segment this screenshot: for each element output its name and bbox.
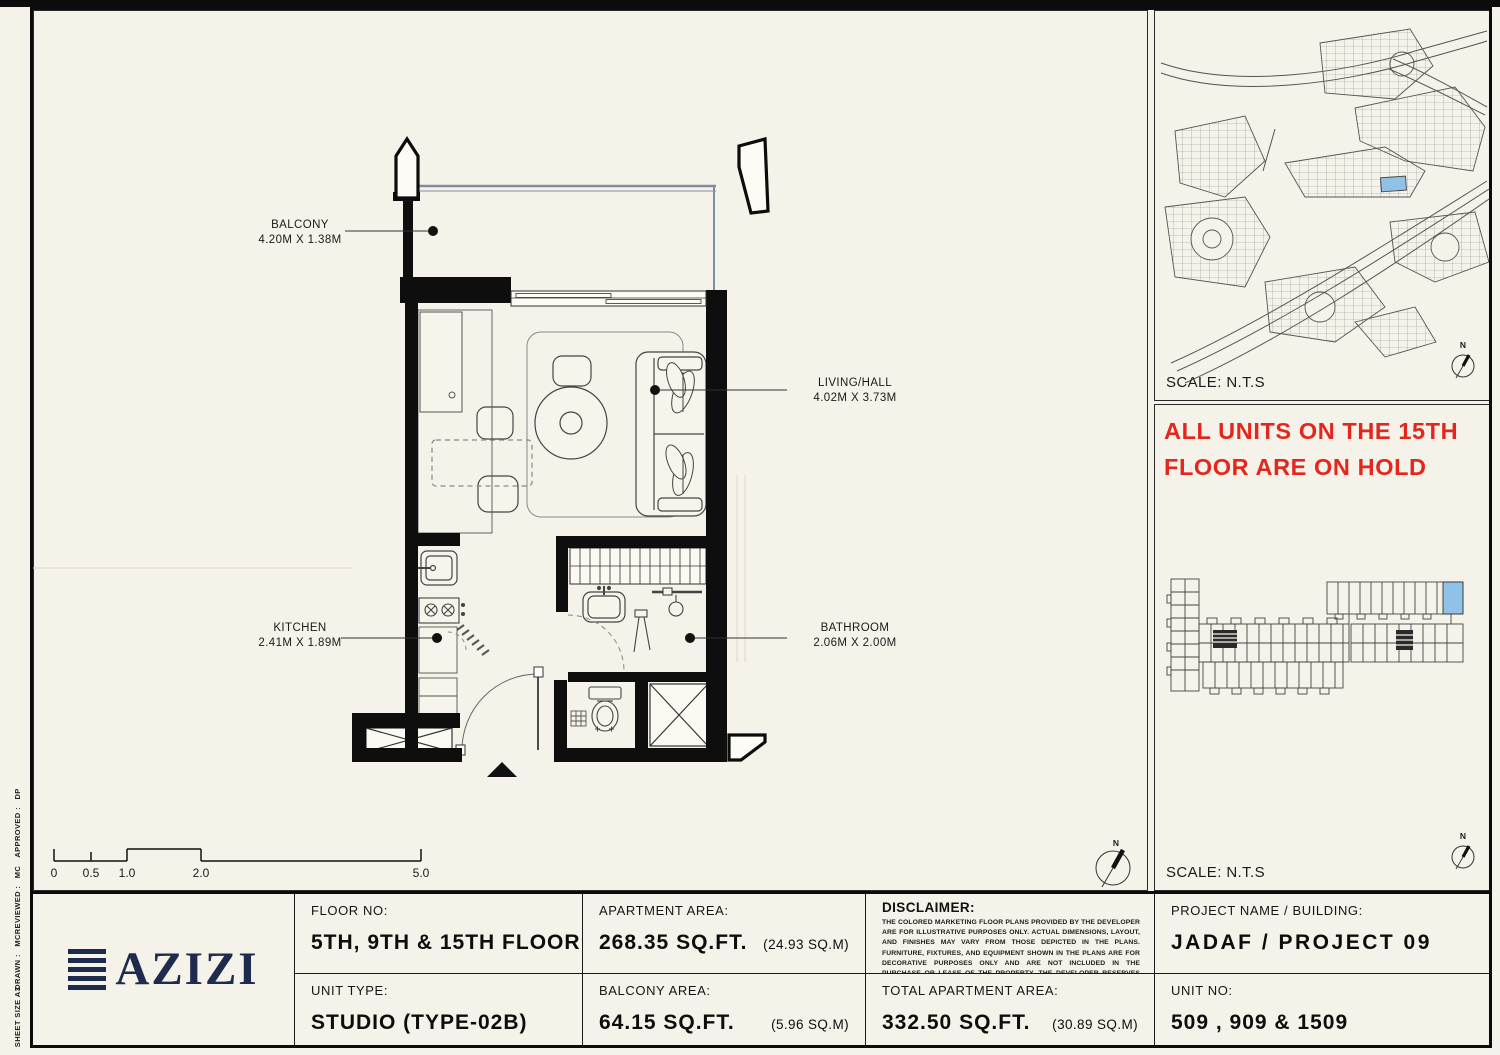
living-label: LIVING/HALL 4.02M X 3.73M <box>785 376 925 406</box>
floorplan-sheet: APPROVED : DP REVIEWED : MC DRAWN : MC S… <box>0 0 1500 1055</box>
kitchen-name: KITCHEN <box>230 621 370 636</box>
key-plan-compass <box>1452 846 1474 869</box>
balcony-area-label: BALCONY AREA: <box>599 983 855 998</box>
highlighted-plot <box>1381 176 1407 192</box>
unit-no-label: UNIT NO: <box>1171 983 1479 998</box>
balcony-dims: 4.20M X 1.38M <box>230 233 370 248</box>
developer-logo: AZIZI <box>33 894 295 1045</box>
total-area-label: TOTAL APARTMENT AREA: <box>882 983 1144 998</box>
balcony-area-metric: (5.96 SQ.M) <box>771 1017 849 1032</box>
margin-sheet-size-label: SHEET SIZE A3 <box>13 957 25 1055</box>
scale-tick-10: 1.0 <box>110 866 144 880</box>
unit-no-cell: UNIT NO: 509 , 909 & 1509 <box>1155 973 1489 1045</box>
disclaimer-text: THE COLORED MARKETING FLOOR PLANS PROVID… <box>882 918 1144 973</box>
scale-tick-50: 5.0 <box>404 866 438 880</box>
total-area-metric: (30.89 SQ.M) <box>1052 1017 1138 1032</box>
site-map-compass <box>1452 355 1474 378</box>
site-map-drawing <box>1155 11 1489 400</box>
floor-no-label: FLOOR NO: <box>311 903 572 918</box>
total-area-value: 332.50 SQ.FT. <box>882 1011 1030 1035</box>
apartment-area-cell: APARTMENT AREA: 268.35 SQ.FT. (24.93 SQ.… <box>583 894 866 973</box>
project-name-label: PROJECT NAME / BUILDING: <box>1171 903 1479 918</box>
key-plan-panel: ALL UNITS ON THE 15TH FLOOR ARE ON HOLD <box>1154 404 1490 891</box>
highlighted-unit <box>1443 582 1463 614</box>
sheet-top-border <box>0 0 1500 7</box>
apartment-area-metric: (24.93 SQ.M) <box>763 937 849 952</box>
apartment-area-value: 268.35 SQ.FT. <box>599 931 747 955</box>
title-block: AZIZI FLOOR NO: 5TH, 9TH & 15TH FLOOR AP… <box>33 891 1489 1045</box>
project-name-value: JADAF / PROJECT 09 <box>1171 931 1479 955</box>
bathroom-name: BATHROOM <box>785 621 925 636</box>
kitchen-label: KITCHEN 2.41M X 1.89M <box>230 621 370 651</box>
unit-type-value: STUDIO (TYPE-02B) <box>311 1011 572 1035</box>
living-dims: 4.02M X 3.73M <box>785 391 925 406</box>
balcony-label: BALCONY 4.20M X 1.38M <box>230 218 370 248</box>
living-name: LIVING/HALL <box>785 376 925 391</box>
project-name-cell: PROJECT NAME / BUILDING: JADAF / PROJECT… <box>1155 894 1489 973</box>
unit-type-cell: UNIT TYPE: STUDIO (TYPE-02B) <box>295 973 583 1045</box>
building-footprint <box>1167 579 1463 694</box>
balcony-area-cell: BALCONY AREA: 64.15 SQ.FT. (5.96 SQ.M) <box>583 973 866 1045</box>
disclaimer-cell: DISCLAIMER: THE COLORED MARKETING FLOOR … <box>866 894 1155 973</box>
total-area-cell: TOTAL APARTMENT AREA: 332.50 SQ.FT. (30.… <box>866 973 1155 1045</box>
key-plan-n-label: N <box>1453 831 1473 841</box>
site-map-panel: N SCALE: N.T.S <box>1154 10 1490 401</box>
site-map-scale-label: SCALE: N.T.S <box>1166 374 1265 391</box>
stair-cores <box>1213 630 1413 650</box>
apartment-area-label: APARTMENT AREA: <box>599 903 855 918</box>
scale-tick-05: 0.5 <box>74 866 108 880</box>
kitchen-dims: 2.41M X 1.89M <box>230 636 370 651</box>
key-plan-scale-label: SCALE: N.T.S <box>1166 864 1265 881</box>
balcony-name: BALCONY <box>230 218 370 233</box>
scale-tick-20: 2.0 <box>184 866 218 880</box>
unit-no-value: 509 , 909 & 1509 <box>1171 1011 1479 1035</box>
logo-wordmark: AZIZI <box>115 946 258 993</box>
azizi-bars-icon <box>68 949 106 991</box>
site-map-n-label: N <box>1453 340 1473 350</box>
bathroom-dims: 2.06M X 2.00M <box>785 636 925 651</box>
unit-type-label: UNIT TYPE: <box>311 983 572 998</box>
disclaimer-label: DISCLAIMER: <box>882 900 1144 915</box>
balcony-area-value: 64.15 SQ.FT. <box>599 1011 735 1035</box>
bathroom-label: BATHROOM 2.06M X 2.00M <box>785 621 925 651</box>
key-plan-drawing <box>1155 405 1489 890</box>
floor-no-cell: FLOOR NO: 5TH, 9TH & 15TH FLOOR <box>295 894 583 973</box>
north-n-label: N <box>1106 838 1126 848</box>
floor-no-value: 5TH, 9TH & 15TH FLOOR <box>311 931 572 955</box>
scale-tick-0: 0 <box>37 866 71 880</box>
plan-panel <box>33 10 1148 891</box>
